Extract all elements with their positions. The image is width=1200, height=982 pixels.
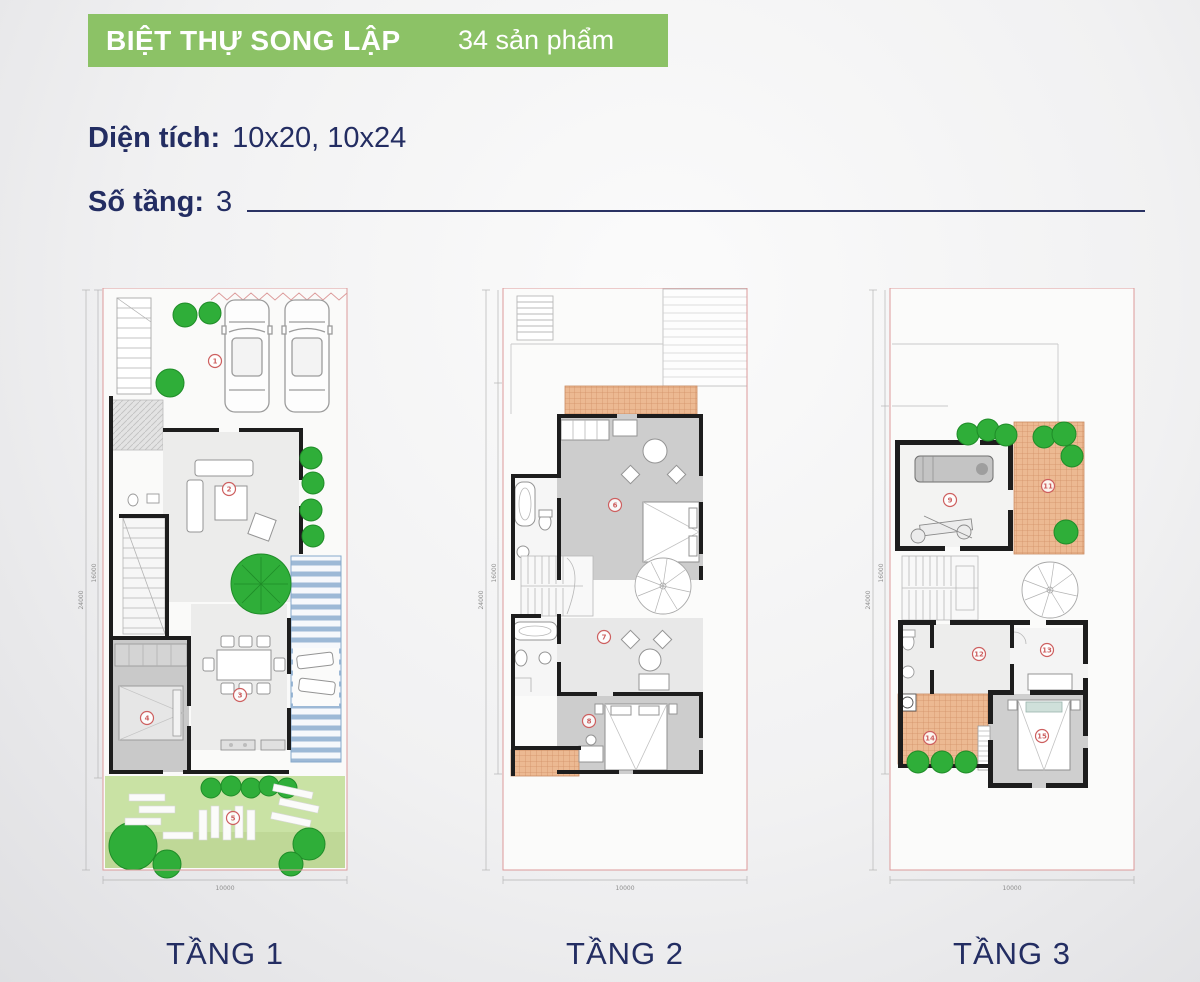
dimension-label: 24000 bbox=[865, 590, 872, 609]
floor-plan-2: 24000 16000 10000 bbox=[448, 288, 748, 913]
floor-caption-1: TẦNG 1 bbox=[103, 936, 347, 972]
floor-plan-1: 24000 16000 10000 bbox=[48, 288, 348, 913]
svg-text:3: 3 bbox=[238, 692, 243, 700]
room-marker: 5 bbox=[227, 812, 240, 825]
svg-text:11: 11 bbox=[1043, 483, 1053, 491]
floors-spec: Số tầng:3 bbox=[88, 186, 232, 219]
floor-plan-2-drawing: 24000 16000 10000 bbox=[448, 288, 748, 913]
floor-caption-2: TẦNG 2 bbox=[503, 936, 747, 972]
dimension-label: 24000 bbox=[78, 590, 85, 609]
dimension-label: 10000 bbox=[1002, 885, 1021, 892]
car-symbol bbox=[282, 300, 332, 412]
spiral-tree-symbol bbox=[635, 558, 691, 614]
floor-plan-1-drawing: 24000 16000 10000 bbox=[48, 288, 348, 913]
room-marker: 12 bbox=[973, 648, 986, 661]
floor-plan-3-drawing: 24000 16000 10000 bbox=[835, 288, 1135, 913]
floors-spec-label: Số tầng: bbox=[88, 186, 204, 218]
bed-symbol bbox=[643, 502, 699, 562]
product-type-title: BIỆT THỰ SONG LẬP bbox=[88, 25, 401, 57]
svg-text:1: 1 bbox=[213, 358, 218, 366]
room-marker: 13 bbox=[1041, 644, 1054, 657]
room-marker: 9 bbox=[944, 494, 957, 507]
room-marker: 6 bbox=[609, 499, 622, 512]
room-marker: 7 bbox=[598, 631, 611, 644]
spiral-tree-symbol bbox=[1022, 562, 1078, 618]
svg-text:15: 15 bbox=[1037, 733, 1047, 741]
svg-text:7: 7 bbox=[602, 634, 607, 642]
room-marker: 11 bbox=[1042, 480, 1055, 493]
stairs bbox=[902, 556, 978, 620]
area-spec-label: Diện tích: bbox=[88, 122, 220, 154]
terrace-tiles bbox=[565, 386, 697, 414]
deck-strip bbox=[291, 556, 341, 762]
dimension-label: 16000 bbox=[491, 563, 498, 582]
svg-text:14: 14 bbox=[925, 735, 935, 743]
roof-pergola bbox=[663, 289, 747, 386]
floor-plan-3: 24000 16000 10000 bbox=[835, 288, 1135, 913]
svg-text:8: 8 bbox=[587, 718, 592, 726]
floor-caption-3: TẦNG 3 bbox=[890, 936, 1134, 972]
floors-spec-value: 3 bbox=[216, 186, 232, 218]
svg-text:2: 2 bbox=[227, 486, 232, 494]
car-symbol bbox=[222, 300, 272, 412]
room-marker: 15 bbox=[1036, 730, 1049, 743]
entry-porch bbox=[111, 400, 163, 450]
dimension-label: 16000 bbox=[878, 563, 885, 582]
area-spec: Diện tích:10x20, 10x24 bbox=[88, 122, 406, 155]
dimension-label: 10000 bbox=[215, 885, 234, 892]
kitchen-counter bbox=[221, 740, 285, 750]
room-marker: 14 bbox=[924, 732, 937, 745]
room-marker: 4 bbox=[141, 712, 154, 725]
pergola-trellis bbox=[517, 296, 553, 340]
area-spec-value: 10x20, 10x24 bbox=[232, 122, 406, 154]
divider-line bbox=[247, 210, 1145, 212]
room-marker: 8 bbox=[583, 715, 596, 728]
room-marker: 3 bbox=[234, 689, 247, 702]
brochure-page: { "header": { "title": "BIỆT THỰ SONG LẬ… bbox=[0, 0, 1200, 982]
bed-symbol bbox=[115, 644, 187, 740]
product-type-banner: BIỆT THỰ SONG LẬP 34 sản phẩm bbox=[88, 14, 668, 67]
product-count: 34 sản phẩm bbox=[458, 25, 614, 56]
dimension-label: 16000 bbox=[91, 563, 98, 582]
svg-text:5: 5 bbox=[231, 815, 236, 823]
svg-text:4: 4 bbox=[145, 715, 150, 723]
stairs bbox=[123, 518, 165, 634]
massage-table bbox=[915, 456, 993, 482]
pergola-trellis bbox=[117, 298, 151, 394]
svg-text:9: 9 bbox=[948, 497, 953, 505]
large-tree-symbol bbox=[231, 554, 291, 614]
family-room-floor bbox=[557, 618, 703, 696]
room-marker: 1 bbox=[209, 355, 222, 368]
dimension-label: 24000 bbox=[478, 590, 485, 609]
svg-text:13: 13 bbox=[1042, 647, 1052, 655]
svg-text:12: 12 bbox=[974, 651, 984, 659]
dimension-label: 10000 bbox=[615, 885, 634, 892]
svg-text:6: 6 bbox=[613, 502, 618, 510]
room-marker: 2 bbox=[223, 483, 236, 496]
